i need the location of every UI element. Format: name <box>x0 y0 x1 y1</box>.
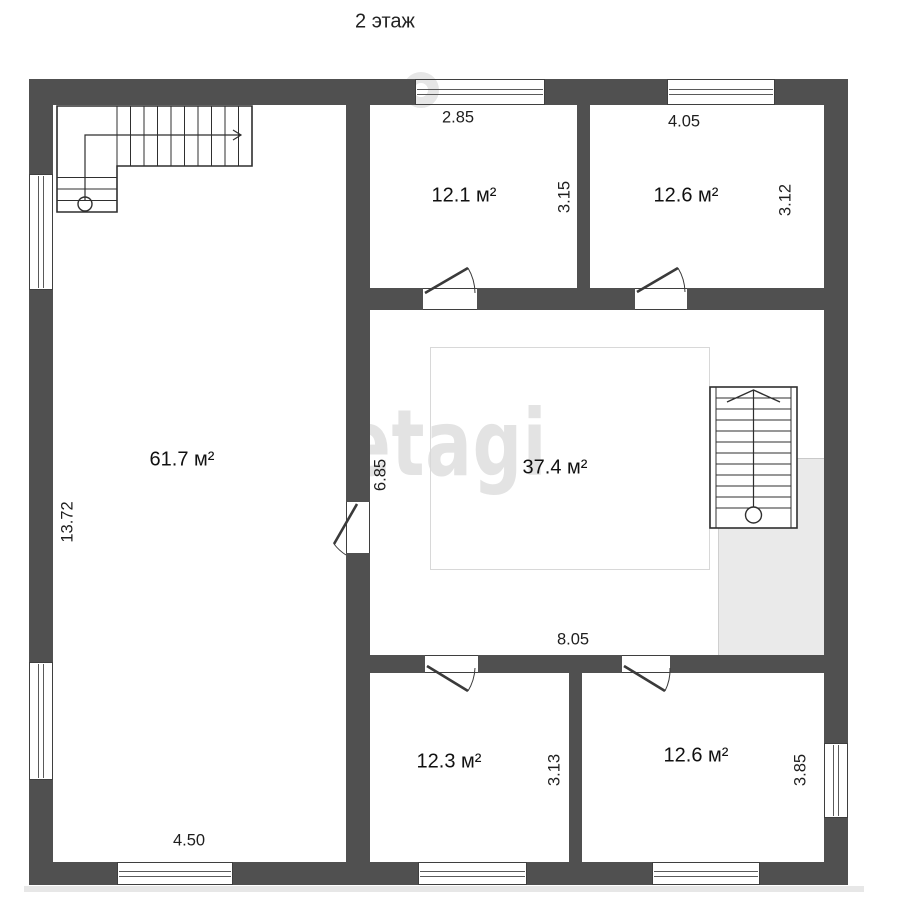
dim-height-room-12-6-top: 3.12 <box>777 184 796 216</box>
window-bottom-1 <box>117 862 233 885</box>
wall-bottom <box>527 862 652 885</box>
area-label-room-61-7: 61.7 м² <box>150 449 215 472</box>
wall-interior-horizontal <box>670 655 824 673</box>
dim-width-room-12-6-top: 4.05 <box>668 113 700 132</box>
wall-interior-horizontal <box>478 655 622 673</box>
wall-interior-horizontal <box>477 288 635 310</box>
wall-right <box>824 818 848 885</box>
window-top-1 <box>415 79 545 105</box>
window-top-2 <box>667 79 775 105</box>
page-shadow <box>24 886 864 892</box>
dim-width-room-37-4: 8.05 <box>557 631 589 650</box>
wall-left <box>29 79 53 174</box>
staircase-top-left <box>55 104 255 215</box>
door-room-12-6-top <box>630 256 692 298</box>
wall-interior-horizontal <box>370 655 425 673</box>
area-label-room-37-4: 37.4 м² <box>523 457 588 480</box>
wall-top <box>545 79 667 105</box>
wall-left <box>29 780 53 885</box>
wall-interior-vertical <box>569 673 582 862</box>
wall-bottom <box>233 862 418 885</box>
window-right-1 <box>824 743 848 818</box>
wall-left <box>29 290 53 662</box>
area-label-room-12-3: 12.3 м² <box>417 751 482 774</box>
dim-height-room-12-1: 3.15 <box>556 181 575 213</box>
wall-right <box>824 79 848 743</box>
dim-width-room-12-1: 2.85 <box>442 109 474 128</box>
wall-top <box>29 79 415 105</box>
dim-height-room-12-6-bottom: 3.85 <box>792 754 811 786</box>
window-bottom-2 <box>418 862 527 885</box>
wall-interior-vertical <box>346 553 370 862</box>
wall-interior-vertical <box>346 105 370 502</box>
dim-width-room-61-7: 4.50 <box>173 832 205 851</box>
door-room-12-3 <box>420 660 482 698</box>
area-label-room-12-6-top: 12.6 м² <box>654 185 719 208</box>
window-bottom-3 <box>652 862 760 885</box>
dim-height-room-37-4: 6.85 <box>372 459 391 491</box>
door-room-61-7 <box>324 498 364 560</box>
door-room-12-1 <box>418 256 484 298</box>
wall-interior-vertical <box>577 105 590 288</box>
dim-height-room-61-7: 13.72 <box>59 501 78 542</box>
wall-interior-horizontal <box>687 288 824 310</box>
floor-plan: 2 этаж etagi <box>0 0 900 900</box>
wall-interior-horizontal <box>370 288 423 310</box>
dim-height-room-12-3: 3.13 <box>546 754 565 786</box>
window-left-2 <box>29 662 53 780</box>
page-title: 2 этаж <box>355 11 415 34</box>
door-room-12-6-bottom <box>617 660 677 698</box>
area-label-room-12-6-bottom: 12.6 м² <box>664 745 729 768</box>
staircase-central <box>708 385 799 530</box>
area-label-room-12-1: 12.1 м² <box>432 185 497 208</box>
window-left-1 <box>29 174 53 290</box>
